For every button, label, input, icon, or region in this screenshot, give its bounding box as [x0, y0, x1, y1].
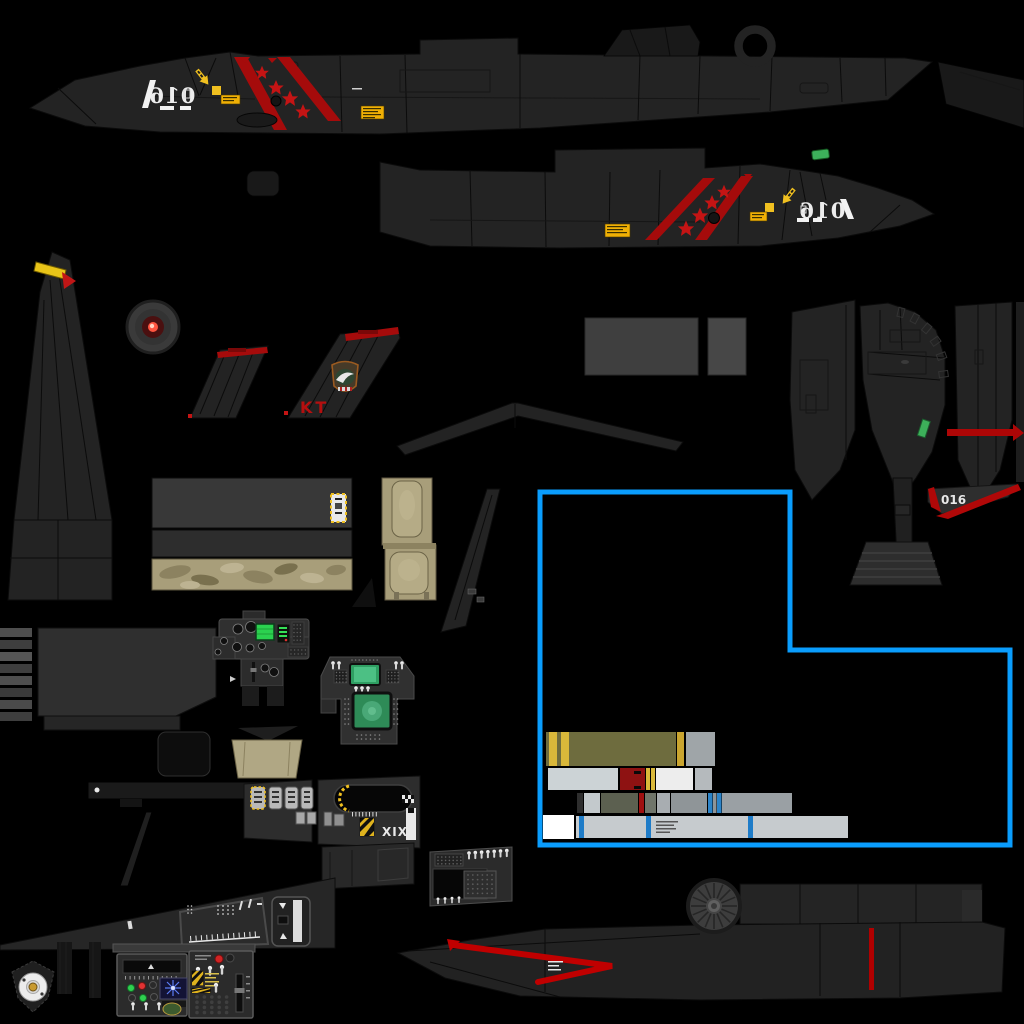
gear-bay-door-right-sprite: [955, 302, 1024, 505]
board-number-right: 016: [797, 198, 854, 223]
engine-fan-sprite: [686, 878, 742, 934]
gear-door-number-text: 016: [941, 493, 966, 507]
fuselage-right-sprite: 016: [262, 148, 934, 248]
switch-panel-sprite: [430, 847, 512, 906]
squadron-emblem: [332, 362, 358, 392]
seat-console-numeral-text: XIX: [382, 825, 408, 839]
formation-light-green: [812, 149, 830, 160]
side-console-right-sprite: XIX: [318, 776, 420, 848]
mfd-panel-sprite: [321, 657, 414, 744]
canopy-mirror-sprite: [158, 732, 210, 776]
nose-wheel-sprite: [12, 961, 54, 1012]
seat-rail-strip-2: [152, 530, 352, 557]
stabilizer-inner-sprite: [188, 346, 268, 418]
checker-marker: [402, 795, 414, 803]
leading-edge-flap-sprite: [397, 403, 683, 455]
compass-indicator: [160, 978, 187, 999]
panel-slider: [235, 974, 245, 1012]
intake-duct-panel-a: [585, 318, 698, 375]
warning-placard-right: [605, 224, 630, 237]
crt-screen: [256, 624, 274, 640]
mfd-main-screen: [353, 693, 391, 729]
corner-wedge-sprite: [352, 578, 376, 607]
board-number-left-text: 016: [149, 83, 196, 108]
side-console-left-sprite: [244, 780, 316, 842]
stabilizer-outer-sprite: KT: [284, 327, 400, 418]
instrument-panel-front-sprite: [213, 611, 309, 706]
red-stripe-vertical: [869, 928, 874, 990]
pitot-blade-sprite: [120, 812, 152, 886]
afterburner-lamp-sprite: [127, 301, 179, 353]
missile-texture-2: [548, 768, 712, 790]
aft-nozzle-sliver-sprite: [938, 62, 1024, 128]
aft-deck-slabs-sprite: [740, 884, 982, 924]
texture-atlas-canvas: 016: [0, 0, 1024, 1024]
wing-panel-tall-sprite: [8, 252, 112, 600]
missile-texture-4: [543, 815, 848, 839]
equipment-strip-stack: [0, 628, 32, 721]
control-panel-a-sprite: [117, 954, 187, 1016]
tire-tread-strips: [57, 942, 101, 998]
windscreen-prism-sprite: [232, 726, 302, 778]
board-number-left: 016: [142, 80, 195, 110]
canopy-frame-sprite: [604, 25, 700, 56]
wing-glove-sprite: [441, 489, 500, 632]
engine-digits-display: [277, 624, 290, 643]
seat-rail-strip-1: [152, 478, 352, 528]
missile-texture-1: [546, 732, 715, 766]
ejection-seat-sprite: [382, 478, 436, 600]
throttle-side-panel: [272, 897, 310, 946]
control-panel-b-sprite: [189, 951, 253, 1018]
panel-emblem: [163, 1003, 181, 1015]
ejection-handle: [334, 785, 412, 812]
gear-bay-center-sprite: [860, 303, 948, 560]
rescue-placard-left: [221, 95, 240, 104]
texture-atlas-page: 016: [0, 0, 1024, 1024]
fuselage-left-sprite: 016: [30, 38, 932, 134]
equipment-panel-box: [38, 628, 216, 730]
mfd-top-screen: [350, 664, 380, 685]
gear-bay-door-left-sprite: [790, 300, 855, 500]
aux-console-sprite: [322, 843, 414, 889]
canopy-mirror-housing-sprite: [247, 171, 279, 196]
intake-ramp-steps-sprite: [850, 542, 942, 585]
uv-selection-outline: [540, 492, 1010, 845]
gear-door-016-sprite: 016: [928, 484, 1021, 519]
seat-cushion-camo-strip: [152, 559, 352, 590]
belly-fuselage-sprite: [398, 922, 1005, 1000]
intake-duct-panel-b: [708, 318, 746, 375]
tail-code-text: KT: [300, 398, 329, 417]
missile-texture-3: [577, 793, 792, 813]
hazard-placard-vertical: [331, 494, 346, 522]
throttle-console-sprite: [180, 897, 310, 947]
rescue-placard-right: [750, 212, 767, 221]
